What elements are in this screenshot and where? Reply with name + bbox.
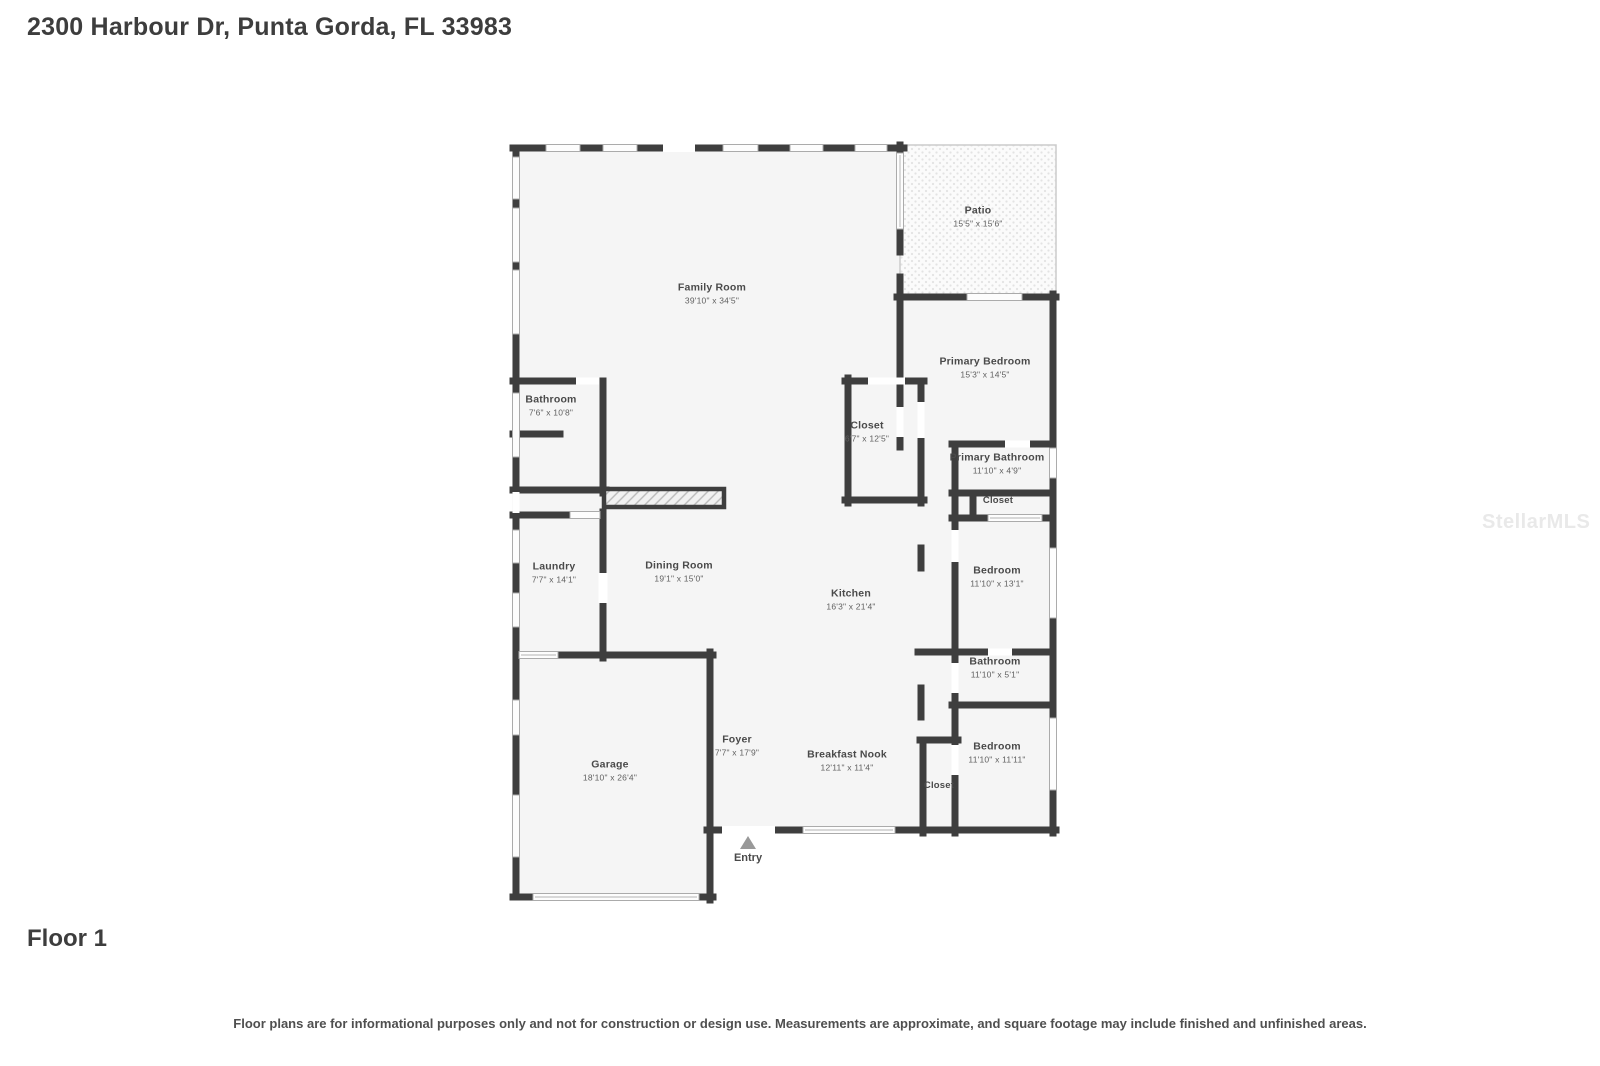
room-dims: 11'10" x 13'1" [970, 578, 1024, 589]
room-label-patio: Patio 15'5" x 15'6" [953, 205, 1002, 230]
room-label-primary-bedroom: Primary Bedroom 15'3" x 14'5" [939, 356, 1030, 381]
room-name: Kitchen [826, 588, 875, 602]
watermark: StellarMLS [1482, 511, 1590, 534]
room-name: Primary Bathroom [950, 452, 1045, 466]
room-dims: 18'10" x 26'4" [583, 772, 637, 783]
room-dims: 19'1" x 15'0" [645, 573, 713, 584]
disclaimer-text: Floor plans are for informational purpos… [0, 1016, 1600, 1031]
room-label-family-room: Family Room 39'10" x 34'5" [678, 282, 746, 307]
room-name: Bedroom [968, 741, 1025, 755]
room-name: Closet [924, 780, 954, 792]
room-label-bathroom-1: Bathroom 7'6" x 10'8" [525, 394, 576, 419]
room-label-garage: Garage 18'10" x 26'4" [583, 759, 637, 784]
room-name: Laundry [532, 561, 576, 575]
room-name: Patio [953, 205, 1002, 219]
room-label-kitchen: Kitchen 16'3" x 21'4" [826, 588, 875, 613]
room-dims: 15'5" x 15'6" [953, 218, 1002, 229]
room-label-closet-walkin: Closet 6'7" x 12'5" [845, 420, 889, 445]
room-label-bedroom-2: Bedroom 11'10" x 11'11" [968, 741, 1025, 766]
room-label-closet-small: Closet [924, 780, 954, 792]
room-label-dining-room: Dining Room 19'1" x 15'0" [645, 560, 713, 585]
room-name: Dining Room [645, 560, 713, 574]
room-name: Closet [983, 495, 1013, 507]
entry-arrow-icon [740, 836, 756, 849]
room-name: Family Room [678, 282, 746, 296]
room-dims: 16'3" x 21'4" [826, 601, 875, 612]
room-label-closet-hall: Closet [983, 495, 1013, 507]
room-dims: 11'10" x 5'1" [969, 669, 1020, 680]
room-label-bathroom-2: Bathroom 11'10" x 5'1" [969, 656, 1020, 681]
room-name: Breakfast Nook [807, 749, 887, 763]
room-dims: 11'10" x 4'9" [950, 465, 1045, 476]
room-name: Bathroom [525, 394, 576, 408]
floor-label: Floor 1 [27, 925, 107, 953]
room-dims: 7'6" x 10'8" [525, 407, 576, 418]
room-label-foyer: Foyer 7'7" x 17'9" [715, 734, 759, 759]
room-name: Closet [845, 420, 889, 434]
room-dims: 15'3" x 14'5" [939, 369, 1030, 380]
room-label-bedroom-1: Bedroom 11'10" x 13'1" [970, 565, 1024, 590]
counter-island [604, 489, 724, 507]
room-dims: 7'7" x 14'1" [532, 574, 576, 585]
room-dims: 6'7" x 12'5" [845, 433, 889, 444]
floor-plan-graphic [0, 0, 1600, 1066]
room-dims: 11'10" x 11'11" [968, 754, 1025, 765]
room-dims: 12'11" x 11'4" [807, 762, 887, 773]
room-name: Garage [583, 759, 637, 773]
room-name: Bathroom [969, 656, 1020, 670]
entry-label: Entry [734, 852, 762, 864]
room-label-breakfast-nook: Breakfast Nook 12'11" x 11'4" [807, 749, 887, 774]
room-dims: 7'7" x 17'9" [715, 747, 759, 758]
room-dims: 39'10" x 34'5" [678, 295, 746, 306]
room-label-primary-bathroom: Primary Bathroom 11'10" x 4'9" [950, 452, 1045, 477]
room-name: Primary Bedroom [939, 356, 1030, 370]
room-name: Bedroom [970, 565, 1024, 579]
room-name: Foyer [715, 734, 759, 748]
room-label-laundry: Laundry 7'7" x 14'1" [532, 561, 576, 586]
